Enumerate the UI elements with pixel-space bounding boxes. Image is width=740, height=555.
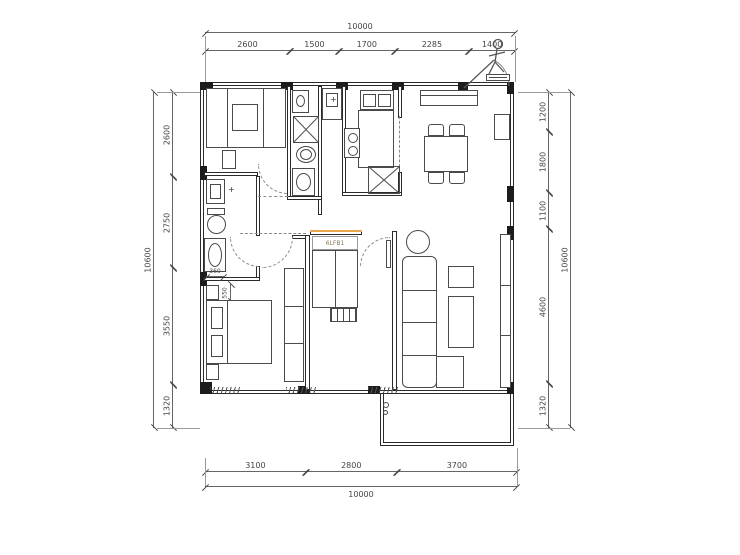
- dimension-bottom-overall: 10000: [205, 486, 517, 487]
- extension-line: [157, 428, 200, 429]
- cloakroom-stool: [222, 150, 236, 169]
- bath1-toilet: [294, 145, 318, 165]
- bedroom2-headboard-label: 6LFB1: [312, 236, 358, 250]
- dimension-top-overall: 10000: [205, 32, 515, 33]
- extension-line: [518, 428, 570, 429]
- bedroom2-bed: [312, 250, 358, 308]
- kitchen-stove: [344, 128, 360, 158]
- living-plant: [406, 230, 430, 254]
- dimension-bath2-offset: 360: [206, 276, 224, 277]
- wall-kitchen-right-upper: [398, 86, 402, 118]
- dining-table: [424, 136, 468, 172]
- living-sofa: [402, 256, 437, 388]
- wall-bedroom2-living: [392, 231, 397, 390]
- wall-bath2-right-upper: [256, 176, 260, 236]
- bedroom1-nightstand-bottom: [206, 364, 219, 380]
- dining-chair: [449, 124, 465, 136]
- cloakroom-wardrobe: [206, 88, 286, 148]
- bath1-basin2: [292, 168, 315, 196]
- bath2-toilet: [205, 208, 229, 236]
- dining-sideboard: [420, 90, 478, 106]
- extension-line: [205, 458, 206, 486]
- extension-line: [518, 92, 570, 93]
- balcony-drain: [383, 402, 389, 408]
- balcony-drain: [383, 410, 388, 415]
- pillow: [211, 307, 223, 329]
- kitchen-sink: [360, 90, 394, 110]
- balcony-wall: [380, 394, 514, 446]
- kitchen-refrigerator: [368, 166, 400, 194]
- bath2-tub: [204, 238, 226, 272]
- window-hatch: [286, 387, 316, 393]
- wash-counter: [322, 88, 342, 120]
- pillow: [211, 335, 223, 357]
- dining-chair: [428, 172, 444, 184]
- dimension-right-overall: 10600: [570, 92, 571, 428]
- window-hatch: [368, 387, 398, 393]
- bath2-washbasin: [206, 179, 225, 204]
- highlighted-wall-segment: [310, 230, 362, 232]
- bedroom2-bed-bench: [330, 308, 357, 322]
- dimension-left-segments: 2600275035501320: [172, 92, 173, 428]
- dining-chair: [449, 172, 465, 184]
- extension-line: [205, 36, 206, 82]
- floor-plan-canvas: 10000 26001500170022851400 310028003700 …: [0, 0, 740, 555]
- dimension-right-segments: 12001800110046001320: [548, 92, 549, 428]
- dimension-bottom-segments: 310028003700: [205, 471, 517, 472]
- bedroom1-bed: [206, 300, 272, 364]
- wall-bath2-top: [204, 172, 258, 176]
- bath1-washbasin: [292, 90, 309, 113]
- living-sofa-chaise: [436, 356, 464, 388]
- bath1-shower: [293, 116, 319, 143]
- wall-column: [507, 186, 514, 202]
- window-hatch: [210, 387, 240, 393]
- door-leaf-bedroom2: [386, 240, 391, 268]
- dining-chair: [428, 124, 444, 136]
- extension-line: [157, 92, 200, 93]
- faucet-icon: +: [228, 186, 235, 194]
- dimension-top-segments: 26001500170022851400: [205, 50, 515, 51]
- living-side-table: [448, 266, 474, 288]
- wall-bedroom1-bedroom2: [305, 235, 310, 390]
- living-coffee-table: [448, 296, 474, 348]
- faucet-icon: +: [330, 96, 337, 104]
- dimension-left-overall: 10600: [153, 92, 154, 428]
- extension-line: [517, 448, 518, 486]
- wall-bath2-bottom: [204, 277, 260, 281]
- wall-bath1-bottom: [287, 196, 322, 200]
- living-tv-cabinet: [500, 234, 511, 388]
- bedroom1-nightstand-top: [206, 285, 219, 300]
- hall-dashed-line: [240, 233, 306, 234]
- door-threshold-dashed: [258, 196, 288, 197]
- kitchen-sliding-door: [399, 116, 400, 172]
- entry-mat: [486, 74, 510, 81]
- bedroom1-wardrobe: [284, 268, 304, 382]
- wardrobe-center-box: [232, 104, 259, 131]
- kitchen-island: [358, 110, 394, 168]
- entry-shoe-cabinet: [494, 114, 510, 140]
